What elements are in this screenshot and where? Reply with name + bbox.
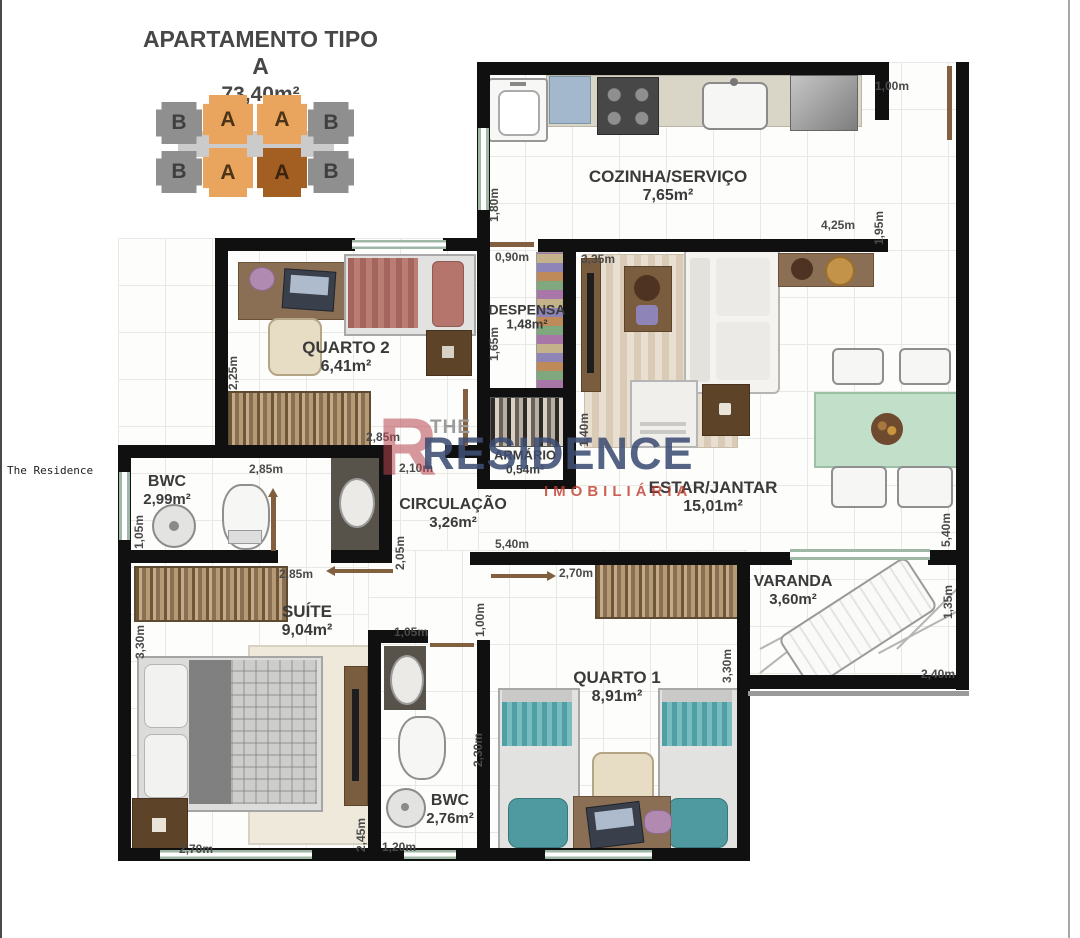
dimension-label: 2,70m [559, 566, 593, 580]
ottoman-line-1 [640, 422, 686, 426]
keyplan-unit-a1: A [203, 95, 253, 144]
coffee-table-decor-1 [634, 275, 660, 301]
wall [379, 445, 392, 563]
dimension-label: 2,45m [354, 818, 368, 852]
washer-door [498, 90, 540, 136]
room-name: BWC [426, 792, 474, 810]
varanda-railing [748, 691, 969, 696]
tv-panel-suite [344, 666, 368, 806]
pillow-suite-1 [144, 664, 188, 728]
wardrobe-quarto2 [227, 391, 371, 449]
window-varanda-divider [790, 549, 930, 560]
keyplan-unit-b3: B [156, 151, 202, 193]
faucet [730, 78, 738, 86]
room-area: 2,99m² [143, 492, 191, 509]
door-leaf-quarto2 [463, 389, 468, 446]
dining-chair-bottom-2 [897, 466, 953, 508]
wall [445, 445, 477, 458]
keyplan-unit-a4-highlighted: A [257, 148, 307, 197]
sink-suite-bwc [339, 478, 375, 528]
toilet-social-bwc [398, 716, 446, 780]
bed-pillow-red [432, 261, 464, 327]
nightstand-suite-decor [152, 818, 166, 832]
plaid-blanket-suite [231, 660, 317, 804]
page-title: APARTAMENTO TIPO A [133, 26, 388, 80]
room-area: 9,04m² [282, 622, 333, 640]
washing-machine [488, 78, 548, 142]
dining-table [814, 392, 962, 468]
dimension-label: 1,40m [577, 413, 591, 447]
sofa [684, 248, 780, 394]
room-label-armario: ARMÁRIO0,54m² [494, 449, 556, 478]
shower-suite-bwc [152, 504, 196, 548]
room-name: DESPENSA [488, 301, 565, 317]
dimension-label: 1,20m [382, 840, 416, 854]
wall [470, 552, 750, 565]
dimension-label: 1,80m [487, 188, 501, 222]
door-arrowhead-quarto1 [547, 571, 556, 581]
dimension-label: 2,40m [921, 667, 955, 681]
shower-drain-2 [401, 803, 409, 811]
door-leaf-entry [947, 66, 952, 140]
room-label-bwc-suite: BWC2,99m² [143, 473, 191, 509]
door-arrow-bwc-suite [268, 488, 278, 497]
door-leaf-bwc-suite [271, 497, 276, 551]
teal-blanket-2 [662, 702, 732, 746]
keyplan-unit-b1: B [156, 102, 202, 144]
teal-blanket-1 [502, 702, 572, 746]
dimension-label: 2,85m [249, 462, 283, 476]
room-area: 2,76m² [426, 811, 474, 828]
room-area: 8,91m² [573, 688, 661, 706]
dimension-label: 3,30m [133, 625, 147, 659]
title-block: APARTAMENTO TIPO A 73,40m² [133, 26, 388, 107]
wall [215, 238, 355, 251]
right-edge-line [1068, 0, 1070, 938]
room-area: 15,01m² [649, 498, 778, 516]
washer-panel [510, 82, 526, 86]
coffee-table [624, 266, 672, 332]
room-name: BWC [143, 473, 191, 491]
wall [478, 62, 888, 75]
pillow-suite-2 [144, 734, 188, 798]
dining-chair-bottom-1 [831, 466, 887, 508]
room-area: 7,65m² [589, 187, 747, 205]
door-arrow-quarto1 [491, 574, 547, 578]
dining-chair-top-1 [832, 348, 884, 385]
room-name: ESTAR/JANTAR [649, 478, 778, 498]
teal-pillow-1 [508, 798, 568, 848]
keyplan-unit-a2: A [257, 95, 307, 144]
side-table-living [702, 384, 750, 436]
floor-plan-canvas: APARTAMENTO TIPO A 73,40m² B A A B B A A… [0, 0, 1080, 938]
tv-suite [352, 689, 359, 781]
wall [118, 550, 278, 563]
wall [737, 552, 750, 848]
table-centerpiece [871, 413, 903, 445]
desk-decor-quarto1 [644, 810, 672, 834]
room-name: VARANDA [754, 573, 833, 591]
stove [597, 77, 659, 135]
dimension-label: 1,00m [473, 603, 487, 637]
room-name: QUARTO 1 [573, 668, 661, 688]
side-watermark-text: The Residence [7, 464, 93, 477]
laptop-quarto2 [282, 268, 337, 312]
wall [477, 388, 576, 397]
wall [748, 552, 792, 565]
dimension-label: 1,00m [875, 79, 909, 93]
fridge [790, 75, 858, 131]
keyplan-unit-a3: A [203, 148, 253, 197]
shower-drain [169, 521, 179, 531]
door-leaf-despensa [490, 242, 534, 247]
room-label-bwc-social: BWC2,76m² [426, 792, 474, 828]
dimension-label: 2,10m [399, 461, 433, 475]
dining-chair-top-2 [899, 348, 951, 385]
wardrobe-quarto1 [595, 562, 739, 619]
single-bed-quarto2 [344, 254, 476, 336]
wall [956, 62, 969, 690]
dimension-label: 2,85m [366, 430, 400, 444]
console-table [778, 253, 874, 287]
window-quarto1 [545, 850, 652, 859]
wall [477, 62, 490, 489]
door-arrowhead-suite [326, 566, 335, 576]
dimension-label: 1,05m [132, 515, 146, 549]
keyplan-unit-b4: B [308, 151, 354, 193]
dimension-label: 1,35m [941, 585, 955, 619]
side-table-decor [719, 403, 731, 415]
dimension-label: 2,05m [393, 536, 407, 570]
dimension-label: 2,30m [471, 733, 485, 767]
dimension-label: 3,35m [581, 252, 615, 266]
shower-social-bwc [386, 788, 426, 828]
room-area: 6,41m² [302, 358, 390, 376]
dimension-label: 1,05m [394, 625, 428, 639]
console-bowl-gold [825, 256, 855, 286]
tv-living [587, 273, 594, 373]
laptop-screen-2 [594, 808, 634, 830]
dimension-label: 1,95m [872, 211, 886, 245]
room-label-estar-jantar: ESTAR/JANTAR15,01m² [649, 478, 778, 516]
dimension-label: 5,40m [939, 513, 953, 547]
sofa-chaise [690, 258, 710, 382]
door-leaf-bwc-social [430, 643, 474, 647]
dimension-label: 2,25m [226, 356, 240, 390]
dimension-label: 2,85m [279, 567, 313, 581]
teal-pillow-2 [668, 798, 728, 848]
wall [538, 239, 888, 252]
dimension-label: 5,40m [495, 537, 529, 551]
left-edge-line [0, 0, 2, 938]
ottoman-line-2 [640, 430, 686, 434]
blanket-fold-suite [189, 660, 231, 804]
desk-plant [249, 267, 275, 291]
wall [118, 445, 392, 458]
keyplan-unit-b2: B [308, 102, 354, 144]
room-area: 3,60m² [754, 592, 833, 609]
wall [563, 239, 576, 489]
room-label-quarto-1: QUARTO 18,91m² [573, 668, 661, 706]
window-quarto2 [352, 240, 446, 249]
room-name: QUARTO 2 [302, 338, 390, 358]
room-label-quarto-2: QUARTO 26,41m² [302, 338, 390, 376]
room-label-cozinha: COZINHA/SERVIÇO7,65m² [589, 167, 747, 205]
room-area: 0,54m² [494, 464, 556, 478]
laptop-screen [290, 275, 329, 296]
coffee-table-decor-2 [636, 305, 658, 325]
dimension-label: 2,70m [179, 842, 213, 856]
room-name: SUÍTE [282, 602, 333, 622]
sofa-cushion-1 [716, 258, 770, 316]
bed-blanket-red [348, 258, 418, 328]
nightstand-decor [442, 346, 454, 358]
room-label-circulacao: CIRCULAÇÃO3,26m² [399, 496, 507, 532]
nightstand-quarto2 [426, 330, 472, 376]
wardrobe-suite [134, 566, 288, 622]
wall [368, 630, 381, 848]
sofa-cushion-2 [716, 322, 770, 380]
wall [477, 480, 576, 489]
dimension-label: 0,90m [495, 250, 529, 264]
laptop-quarto1 [586, 801, 645, 849]
room-name: COZINHA/SERVIÇO [589, 167, 747, 187]
dimension-label: 1,65m [487, 327, 501, 361]
wall [215, 238, 228, 445]
double-bed-suite [137, 656, 323, 812]
single-bed-quarto1-left [498, 688, 580, 858]
toilet-tank [228, 530, 262, 544]
wall [928, 550, 956, 565]
vanity-suite-bwc [331, 448, 379, 552]
ottoman [630, 380, 698, 448]
kitchen-sink [702, 82, 768, 130]
laundry-sink [549, 76, 591, 124]
room-name: CIRCULAÇÃO [399, 496, 507, 514]
headboard-2 [662, 690, 732, 702]
tv-panel-living [581, 258, 601, 392]
toilet-suite-bwc [222, 484, 270, 550]
door-arrow-suite [335, 569, 393, 573]
room-label-varanda: VARANDA3,60m² [754, 573, 833, 609]
room-area: 3,26m² [399, 515, 507, 532]
sink-social-bwc [390, 655, 424, 705]
window-bwc-suite [119, 472, 130, 540]
headboard-1 [502, 690, 572, 702]
dimension-label: 4,25m [821, 218, 855, 232]
hall-closet [490, 397, 565, 447]
dimension-label: 3,30m [720, 649, 734, 683]
room-name: ARMÁRIO [494, 449, 556, 464]
room-label-suite: SUÍTE9,04m² [282, 602, 333, 640]
vanity-social-bwc [384, 646, 426, 710]
console-bowl-dark [791, 258, 813, 280]
